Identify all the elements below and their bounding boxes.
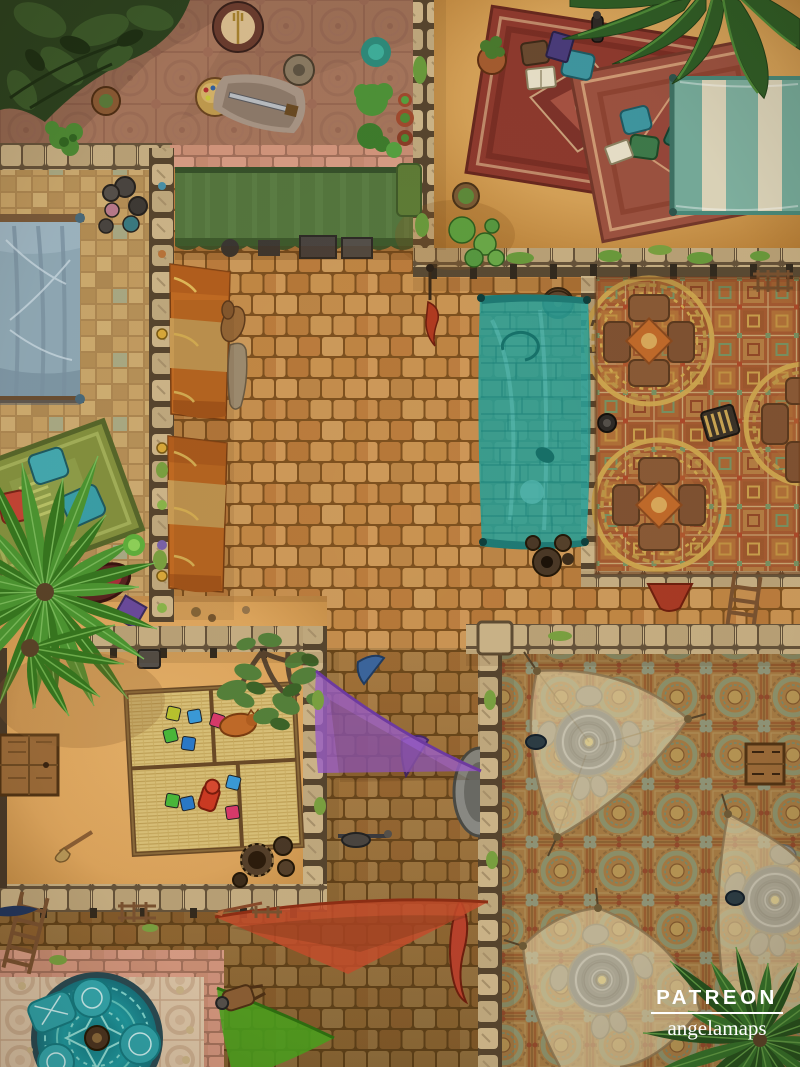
svg-text:PATREON: PATREON (656, 986, 778, 1009)
svg-text:angelamaps: angelamaps (667, 1016, 766, 1040)
